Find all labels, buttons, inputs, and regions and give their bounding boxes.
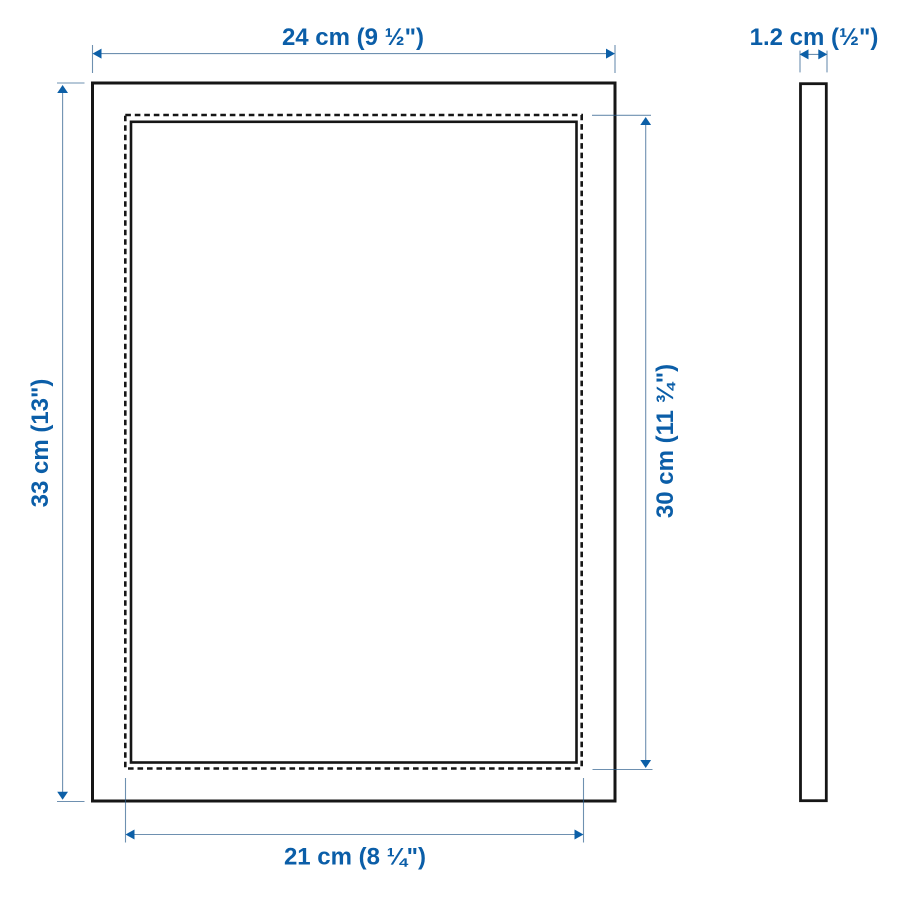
svg-text:21 cm (8 ¼"): 21 cm (8 ¼") <box>284 844 426 871</box>
svg-text:30 cm (11 ¾"): 30 cm (11 ¾") <box>652 364 679 518</box>
svg-text:1.2 cm (½"): 1.2 cm (½") <box>750 24 879 51</box>
svg-text:33 cm (13"): 33 cm (13") <box>27 379 54 508</box>
svg-text:24 cm (9 ½"): 24 cm (9 ½") <box>282 24 424 51</box>
